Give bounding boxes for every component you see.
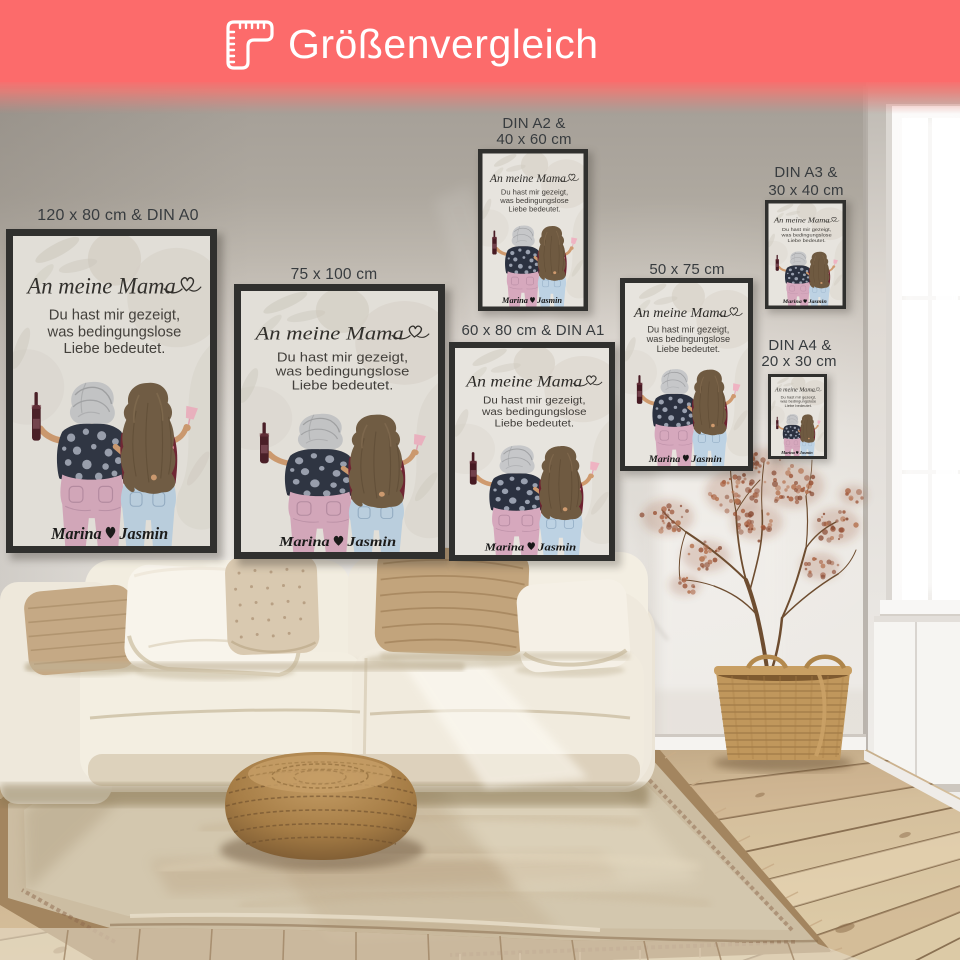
svg-text:60 x 80 cm & DIN A1: 60 x 80 cm & DIN A1 bbox=[461, 322, 604, 339]
svg-text:75 x 100 cm: 75 x 100 cm bbox=[291, 266, 378, 283]
svg-text:DIN A2 &: DIN A2 & bbox=[502, 115, 565, 132]
svg-text:50 x 75 cm: 50 x 75 cm bbox=[649, 261, 724, 278]
svg-text:40 x 60 cm: 40 x 60 cm bbox=[496, 131, 571, 148]
svg-text:30 x 40 cm: 30 x 40 cm bbox=[768, 182, 843, 199]
svg-text:120 x 80 cm & DIN A0: 120 x 80 cm & DIN A0 bbox=[37, 207, 198, 224]
svg-text:Größenvergleich: Größenvergleich bbox=[288, 21, 599, 67]
svg-text:DIN A4 &: DIN A4 & bbox=[768, 337, 831, 354]
svg-text:DIN A3 &: DIN A3 & bbox=[774, 164, 837, 181]
svg-text:20 x 30 cm: 20 x 30 cm bbox=[761, 353, 836, 370]
